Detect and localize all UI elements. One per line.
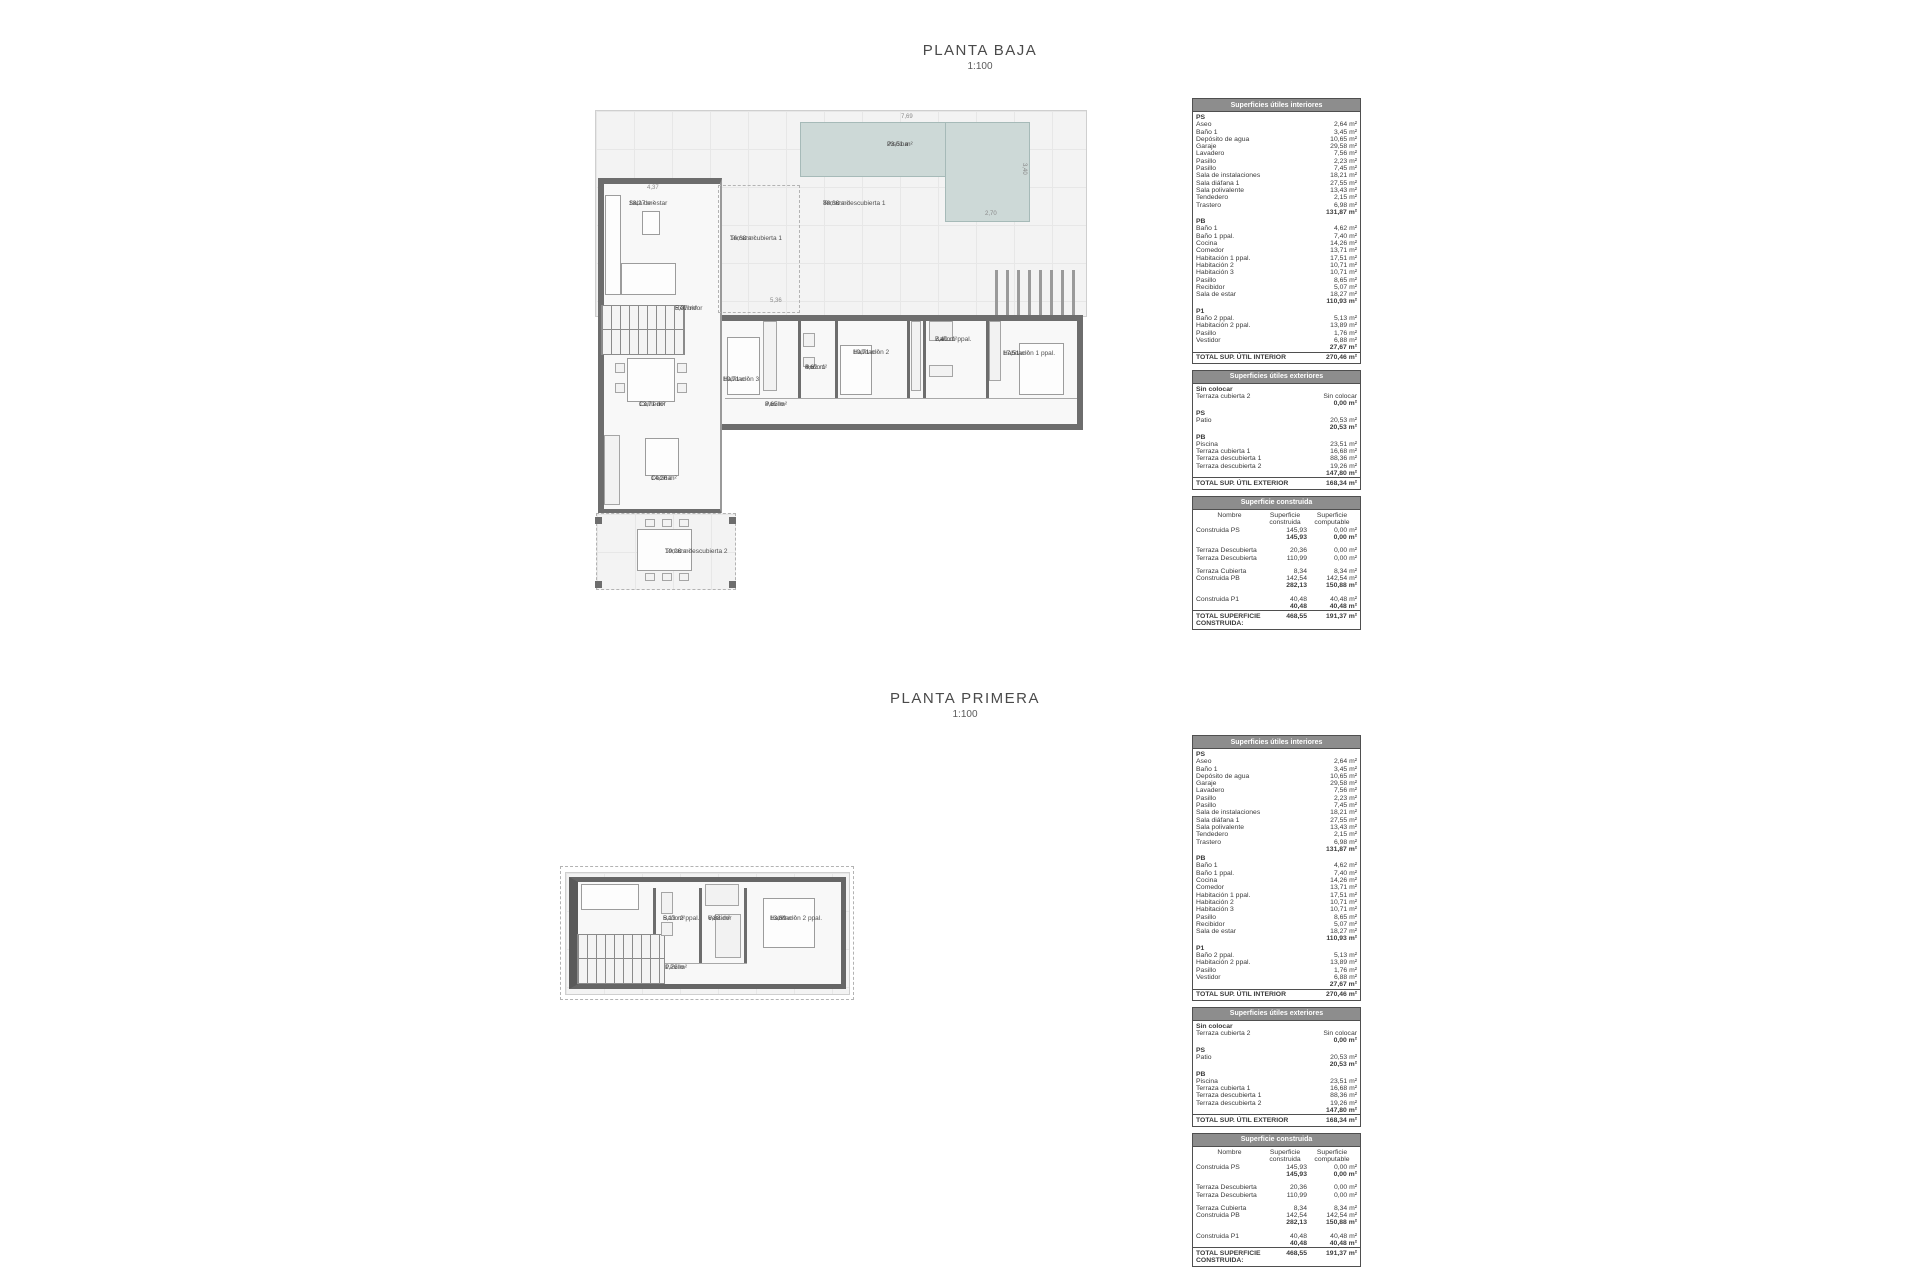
group-heading-label: PB	[1196, 855, 1205, 862]
row-label: Comedor	[1196, 884, 1224, 891]
subtotal-value: 147,80 m²	[1326, 470, 1357, 477]
table-row: Terraza Descubierta110,990,00 m²	[1193, 555, 1360, 562]
group-heading-label: PS	[1196, 1047, 1205, 1054]
total-label: TOTAL SUP. ÚTIL INTERIOR	[1196, 991, 1286, 998]
row-label: Piscina	[1196, 1078, 1218, 1085]
post	[595, 517, 602, 524]
table-row: 145,930,00 m²	[1193, 534, 1360, 541]
row-comp-value: 40,48 m²	[1307, 1240, 1357, 1247]
sink	[661, 892, 673, 914]
bed-room3	[727, 337, 760, 395]
table-row: 40,4840,48 m²	[1193, 1240, 1360, 1247]
row-label: Pasillo	[1196, 914, 1216, 921]
row-label: Terraza Cubierta	[1196, 1205, 1263, 1212]
table-row: Habitación 310,71 m²	[1193, 906, 1360, 913]
row-label: Trastero	[1196, 202, 1221, 209]
table-group-heading: PB	[1193, 432, 1360, 441]
table-row: Terraza Cubierta8,348,34 m²	[1193, 1205, 1360, 1212]
total-label: TOTAL SUP. ÚTIL EXTERIOR	[1196, 480, 1288, 487]
staircase-upper	[577, 934, 665, 984]
surface-table: Superficies útiles exterioresSin colocar…	[1192, 1007, 1361, 1127]
table-group-heading: Sin colocar	[1193, 384, 1360, 393]
group-heading-label: PB	[1196, 218, 1205, 225]
row-label: Habitación 2 ppal.	[1196, 959, 1250, 966]
row-value: 19,26 m²	[1330, 463, 1357, 470]
chair	[677, 363, 687, 373]
table-row: Piscina23,51 m²	[1193, 1078, 1360, 1085]
table-row: Pasillo7,45 m²	[1193, 802, 1360, 809]
row-value: 10,65 m²	[1330, 773, 1357, 780]
sofa-back	[605, 195, 621, 295]
row-value: 10,65 m²	[1330, 136, 1357, 143]
table-row: Habitación 1 ppal.17,51 m²	[1193, 892, 1360, 899]
room-label-area: 18,27 m²	[629, 200, 655, 208]
row-built-value: 40,48	[1263, 603, 1307, 610]
corridor-line	[725, 398, 1077, 399]
total-value: 270,46 m²	[1326, 354, 1357, 361]
room-label-area: 5,07 m²	[675, 305, 697, 313]
row-built-value: 282,13	[1263, 1219, 1307, 1226]
table-subtotal-row: 0,00 m²	[1193, 400, 1360, 407]
group-heading-label: PB	[1196, 1071, 1205, 1078]
table-row: Habitación 210,71 m²	[1193, 899, 1360, 906]
row-built-value: 145,93	[1263, 527, 1307, 534]
table-row: Cocina14,26 m²	[1193, 240, 1360, 247]
table-group-heading: PS	[1193, 408, 1360, 417]
chair	[679, 519, 689, 527]
row-value: 18,21 m²	[1330, 809, 1357, 816]
row-label: Comedor	[1196, 247, 1224, 254]
planta-baja-title: PLANTA BAJA 1:100	[880, 42, 1080, 72]
table-row: Terraza cubierta 2Sin colocar	[1193, 393, 1360, 400]
row-value: 1,76 m²	[1334, 330, 1357, 337]
row-value: 7,45 m²	[1334, 165, 1357, 172]
subtotal-value: 110,93 m²	[1326, 298, 1357, 305]
row-value: Sin colocar	[1323, 1030, 1357, 1037]
row-value: 5,13 m²	[1334, 315, 1357, 322]
table-subtotal-row: 131,87 m²	[1193, 209, 1360, 216]
room-label-area: 4,62 m²	[805, 364, 827, 372]
table-row: Baño 2 ppal.5,13 m²	[1193, 952, 1360, 959]
table-subtotal-row: 147,80 m²	[1193, 470, 1360, 477]
row-label	[1196, 603, 1263, 610]
drawing-sheet: PLANTA BAJA 1:100	[0, 0, 1920, 1280]
row-comp-value: 40,48 m²	[1307, 1233, 1357, 1240]
row-label: Lavadero	[1196, 787, 1224, 794]
row-value: 14,26 m²	[1330, 240, 1357, 247]
row-label: Recibidor	[1196, 921, 1225, 928]
surface-table: Superficies útiles interioresPSAseo2,64 …	[1192, 735, 1361, 1001]
row-value: 1,76 m²	[1334, 967, 1357, 974]
row-value: 2,64 m²	[1334, 121, 1357, 128]
row-label: Cocina	[1196, 240, 1217, 247]
row-label	[1196, 1219, 1263, 1226]
row-comp-value: 150,88 m²	[1307, 582, 1357, 589]
row-label: Tendedero	[1196, 831, 1228, 838]
table-row: Pasillo2,23 m²	[1193, 158, 1360, 165]
table-row: Terraza Descubierta20,360,00 m²	[1193, 1184, 1360, 1191]
row-label: Terraza Cubierta	[1196, 568, 1263, 575]
planta-baja-title-text: PLANTA BAJA	[880, 42, 1080, 59]
row-value: 18,27 m²	[1330, 928, 1357, 935]
staircase-divider	[577, 958, 665, 959]
table-group-heading: PS	[1193, 112, 1360, 121]
surface-table: Superficies útiles interioresPSAseo2,64 …	[1192, 98, 1361, 364]
row-value: 3,45 m²	[1334, 129, 1357, 136]
row-label: Sala diáfana 1	[1196, 180, 1239, 187]
row-label: Garaje	[1196, 143, 1216, 150]
total-value: 270,46 m²	[1326, 991, 1357, 998]
row-label: Terraza Descubierta	[1196, 1192, 1263, 1199]
table-row: Terraza descubierta 219,26 m²	[1193, 1100, 1360, 1107]
room-label-area: 16,68 m²	[730, 235, 756, 243]
wardrobe	[911, 321, 921, 391]
chair	[679, 573, 689, 581]
row-value: 16,68 m²	[1330, 1085, 1357, 1092]
row-value: 10,71 m²	[1330, 906, 1357, 913]
group-heading-label: PS	[1196, 751, 1205, 758]
row-value: 18,27 m²	[1330, 291, 1357, 298]
row-label: Terraza descubierta 1	[1196, 1092, 1261, 1099]
partition-wall	[835, 321, 838, 398]
dimension-label: 2,70	[985, 211, 997, 217]
kitchen-counter	[604, 435, 620, 505]
row-value: 13,43 m²	[1330, 187, 1357, 194]
row-label: Aseo	[1196, 758, 1212, 765]
row-built-value: 40,48	[1263, 596, 1307, 603]
table-row: Pasillo8,65 m²	[1193, 277, 1360, 284]
table-row: Trastero6,98 m²	[1193, 202, 1360, 209]
row-value: 18,21 m²	[1330, 172, 1357, 179]
table-row: Lavadero7,56 m²	[1193, 150, 1360, 157]
group-heading-label: PB	[1196, 434, 1205, 441]
row-label	[1196, 1240, 1263, 1247]
row-value: 7,45 m²	[1334, 802, 1357, 809]
table-row: Vestidor6,88 m²	[1193, 974, 1360, 981]
row-label: Terraza descubierta 2	[1196, 463, 1261, 470]
row-label: Baño 2 ppal.	[1196, 952, 1234, 959]
row-built-value: 8,34	[1263, 1205, 1307, 1212]
table-group-heading: PS	[1193, 749, 1360, 758]
row-comp-value: 0,00 m²	[1307, 1171, 1357, 1178]
row-value: 10,71 m²	[1330, 899, 1357, 906]
subtotal-value: 20,53 m²	[1330, 1061, 1357, 1068]
table-header: Superficies útiles interiores	[1193, 736, 1360, 749]
subtotal-value: 131,87 m²	[1326, 846, 1357, 853]
planta-baja-plan: Piscina23,51 m²Terraza descubierta 188,3…	[595, 105, 1090, 590]
table-row: Recibidor5,07 m²	[1193, 921, 1360, 928]
row-built-value: 142,54	[1263, 575, 1307, 582]
table-row: Pasillo8,65 m²	[1193, 914, 1360, 921]
table-subtotal-row: 27,67 m²	[1193, 981, 1360, 988]
table-row: Terraza descubierta 219,26 m²	[1193, 463, 1360, 470]
row-value: 2,15 m²	[1334, 831, 1357, 838]
table-row: Baño 1 ppal.7,40 m²	[1193, 233, 1360, 240]
table-group-heading: PB	[1193, 1069, 1360, 1078]
chair	[662, 573, 672, 581]
row-value: 7,56 m²	[1334, 787, 1357, 794]
table-row: Piscina23,51 m²	[1193, 441, 1360, 448]
row-label: Sala de estar	[1196, 291, 1236, 298]
subtotal-value: 20,53 m²	[1330, 424, 1357, 431]
table-subtotal-row: 131,87 m²	[1193, 846, 1360, 853]
table-row: Baño 2 ppal.5,13 m²	[1193, 315, 1360, 322]
room-label-area: 14,26 m²	[651, 475, 677, 483]
row-value: 20,53 m²	[1330, 1054, 1357, 1061]
table-total-row: TOTAL SUP. ÚTIL INTERIOR270,46 m²	[1193, 352, 1360, 363]
planta-primera-title-text: PLANTA PRIMERA	[865, 690, 1065, 707]
table-row: Construida PS145,930,00 m²	[1193, 527, 1360, 534]
total-built-value: 468,55	[1263, 1250, 1307, 1265]
row-value: 13,89 m²	[1330, 322, 1357, 329]
row-label	[1196, 582, 1263, 589]
table-row: Baño 14,62 m²	[1193, 862, 1360, 869]
table-row: Terraza cubierta 116,68 m²	[1193, 448, 1360, 455]
row-value: 13,71 m²	[1330, 247, 1357, 254]
table-row: Habitación 2 ppal.13,89 m²	[1193, 959, 1360, 966]
row-value: 6,98 m²	[1334, 202, 1357, 209]
planta-primera-scale: 1:100	[865, 709, 1065, 720]
subtotal-value: 27,67 m²	[1330, 344, 1357, 351]
row-value: 13,71 m²	[1330, 884, 1357, 891]
staircase	[601, 305, 685, 355]
row-label: Patio	[1196, 1054, 1212, 1061]
row-label: Sala de estar	[1196, 928, 1236, 935]
sofa-chaise	[621, 263, 676, 295]
row-value: 23,51 m²	[1330, 1078, 1357, 1085]
row-label: Sala polivalente	[1196, 824, 1244, 831]
row-label: Depósito de agua	[1196, 136, 1249, 143]
partition-wall	[798, 321, 801, 398]
partition-wall	[907, 321, 910, 398]
dining-table	[627, 358, 675, 402]
row-value: 19,26 m²	[1330, 1100, 1357, 1107]
table-row: Patio20,53 m²	[1193, 1054, 1360, 1061]
row-label: Pasillo	[1196, 158, 1216, 165]
table-group-heading: P1	[1193, 943, 1360, 952]
row-value: 27,55 m²	[1330, 180, 1357, 187]
row-label: Construida PB	[1196, 1212, 1263, 1219]
chair	[662, 519, 672, 527]
table-row: Aseo2,64 m²	[1193, 121, 1360, 128]
row-label: Depósito de agua	[1196, 773, 1249, 780]
row-label: Pasillo	[1196, 795, 1216, 802]
pool-vertical	[945, 122, 1030, 222]
chair	[645, 519, 655, 527]
row-label: Cocina	[1196, 877, 1217, 884]
table-row: Construida P140,4840,48 m²	[1193, 596, 1360, 603]
row-label: Baño 1	[1196, 862, 1218, 869]
table-row: Construida PS145,930,00 m²	[1193, 1164, 1360, 1171]
row-value: 16,68 m²	[1330, 448, 1357, 455]
row-label: Terraza descubierta 2	[1196, 1100, 1261, 1107]
partition-wall	[744, 888, 747, 963]
row-label: Terraza cubierta 1	[1196, 1085, 1250, 1092]
table-subtotal-row: 147,80 m²	[1193, 1107, 1360, 1114]
table-row: Sala de estar18,27 m²	[1193, 291, 1360, 298]
table-row: Cocina14,26 m²	[1193, 877, 1360, 884]
table-header: Superficie construida	[1193, 497, 1360, 510]
row-built-value: 110,99	[1263, 1192, 1307, 1199]
row-label	[1196, 534, 1263, 541]
table-row: Sala de instalaciones18,21 m²	[1193, 809, 1360, 816]
dimension-label: 5,36	[770, 298, 782, 304]
total-value: 168,34 m²	[1326, 480, 1357, 487]
row-value: 7,40 m²	[1334, 870, 1357, 877]
surface-table: Superficies útiles exterioresSin colocar…	[1192, 370, 1361, 490]
table-total-row: TOTAL SUP. ÚTIL INTERIOR270,46 m²	[1193, 989, 1360, 1000]
row-value: 10,71 m²	[1330, 262, 1357, 269]
row-value: 23,51 m²	[1330, 441, 1357, 448]
col-header-comp: Superficiecomputable	[1307, 512, 1357, 527]
row-label: Construida P1	[1196, 1233, 1263, 1240]
dimension-label: 4,37	[647, 185, 659, 191]
row-label: Construida P1	[1196, 596, 1263, 603]
room-label-area: 8,65 m²	[765, 401, 787, 409]
row-comp-value: 142,54 m²	[1307, 1212, 1357, 1219]
table-row: Terraza Cubierta8,348,34 m²	[1193, 568, 1360, 575]
row-built-value: 142,54	[1263, 1212, 1307, 1219]
table-row: Construida PB142,54142,54 m²	[1193, 575, 1360, 582]
room-label-area: 88,36 m²	[823, 200, 849, 208]
table-header: Superficies útiles interiores	[1193, 99, 1360, 112]
total-built-value: 468,55	[1263, 613, 1307, 628]
row-built-value: 282,13	[1263, 582, 1307, 589]
covered-terrace-outline	[718, 185, 800, 313]
table-group-heading: Sin colocar	[1193, 1021, 1360, 1030]
row-built-value: 8,34	[1263, 568, 1307, 575]
row-built-value: 40,48	[1263, 1233, 1307, 1240]
table-subtotal-row: 27,67 m²	[1193, 344, 1360, 351]
dimension-label: 7,69	[901, 114, 913, 120]
row-label: Habitación 3	[1196, 906, 1234, 913]
post	[729, 581, 736, 588]
table-total-row: TOTAL SUPERFICIE CONSTRUIDA:468,55191,37…	[1193, 610, 1360, 629]
table-row: Sala de instalaciones18,21 m²	[1193, 172, 1360, 179]
room-label-area: 1,76 m²	[665, 964, 687, 972]
row-value: 7,40 m²	[1334, 233, 1357, 240]
row-label: Sala diáfana 1	[1196, 817, 1239, 824]
total-label: TOTAL SUP. ÚTIL EXTERIOR	[1196, 1117, 1288, 1124]
row-value: 8,65 m²	[1334, 914, 1357, 921]
table-row: Comedor13,71 m²	[1193, 247, 1360, 254]
table-row: Aseo2,64 m²	[1193, 758, 1360, 765]
total-comp-value: 191,37 m²	[1307, 613, 1357, 628]
table-row: Sala diáfana 127,55 m²	[1193, 817, 1360, 824]
wardrobe	[989, 321, 1001, 381]
subtotal-value: 27,67 m²	[1330, 981, 1357, 988]
table-subtotal-row: 110,93 m²	[1193, 298, 1360, 305]
row-value: 27,55 m²	[1330, 817, 1357, 824]
table-row: 145,930,00 m²	[1193, 1171, 1360, 1178]
col-header-built: Superficieconstruida	[1263, 512, 1307, 527]
row-built-value: 145,93	[1263, 1171, 1307, 1178]
side-table	[642, 211, 660, 235]
row-comp-value: 0,00 m²	[1307, 527, 1357, 534]
row-comp-value: 8,34 m²	[1307, 1205, 1357, 1212]
row-label: Construida PS	[1196, 1164, 1263, 1171]
row-value: 5,07 m²	[1334, 921, 1357, 928]
row-value: 10,71 m²	[1330, 269, 1357, 276]
table-row: Terraza Descubierta20,360,00 m²	[1193, 547, 1360, 554]
row-label: Terraza cubierta 1	[1196, 448, 1250, 455]
row-value: 17,51 m²	[1330, 892, 1357, 899]
row-comp-value: 0,00 m²	[1307, 534, 1357, 541]
row-label: Terraza cubierta 2	[1196, 1030, 1250, 1037]
built-surface-table: Superficie construidaNombreSuperficiecon…	[1192, 496, 1361, 630]
table-row: Garaje29,58 m²	[1193, 143, 1360, 150]
row-label: Baño 1 ppal.	[1196, 233, 1234, 240]
row-label: Baño 1 ppal.	[1196, 870, 1234, 877]
row-value: 6,88 m²	[1334, 337, 1357, 344]
chair	[615, 363, 625, 373]
row-comp-value: 150,88 m²	[1307, 1219, 1357, 1226]
table-row: Terraza cubierta 2Sin colocar	[1193, 1030, 1360, 1037]
chair	[645, 573, 655, 581]
table-row: Tendedero2,15 m²	[1193, 831, 1360, 838]
table-row: Habitación 2 ppal.13,89 m²	[1193, 322, 1360, 329]
table-row: Vestidor6,88 m²	[1193, 337, 1360, 344]
row-label: Piscina	[1196, 441, 1218, 448]
shower	[705, 884, 739, 906]
col-header-name: Nombre	[1196, 1149, 1263, 1164]
row-label: Patio	[1196, 417, 1212, 424]
table-row: Trastero6,98 m²	[1193, 839, 1360, 846]
row-built-value: 40,48	[1263, 1240, 1307, 1247]
row-label: Habitación 2 ppal.	[1196, 322, 1250, 329]
row-value: 7,56 m²	[1334, 150, 1357, 157]
subtotal-value: 131,87 m²	[1326, 209, 1357, 216]
kitchen-island	[645, 438, 679, 476]
table-row: 40,4840,48 m²	[1193, 603, 1360, 610]
table-row: Recibidor5,07 m²	[1193, 284, 1360, 291]
table-header: Superficies útiles exteriores	[1193, 1008, 1360, 1021]
row-label: Baño 1	[1196, 225, 1218, 232]
table-row: Baño 14,62 m²	[1193, 225, 1360, 232]
surface-tables-planta-primera: Superficies útiles interioresPSAseo2,64 …	[1192, 735, 1359, 1273]
row-value: 17,51 m²	[1330, 255, 1357, 262]
table-row: Pasillo1,76 m²	[1193, 330, 1360, 337]
table-row: Depósito de agua10,65 m²	[1193, 773, 1360, 780]
table-row: Habitación 310,71 m²	[1193, 269, 1360, 276]
table-row: Sala diáfana 127,55 m²	[1193, 180, 1360, 187]
table-row: Patio20,53 m²	[1193, 417, 1360, 424]
col-header-comp: Superficiecomputable	[1307, 1149, 1357, 1164]
col-header-built: Superficieconstruida	[1263, 1149, 1307, 1164]
table-subtotal-row: 20,53 m²	[1193, 424, 1360, 431]
group-heading-label: PS	[1196, 410, 1205, 417]
row-label: Pasillo	[1196, 802, 1216, 809]
row-value: 88,36 m²	[1330, 455, 1357, 462]
chair	[615, 383, 625, 393]
row-value: 2,23 m²	[1334, 158, 1357, 165]
row-label: Pasillo	[1196, 967, 1216, 974]
total-comp-value: 191,37 m²	[1307, 1250, 1357, 1265]
table-row: Construida P140,4840,48 m²	[1193, 1233, 1360, 1240]
table-header: Superficies útiles exteriores	[1193, 371, 1360, 384]
table-row: Comedor13,71 m²	[1193, 884, 1360, 891]
table-row: Terraza cubierta 116,68 m²	[1193, 1085, 1360, 1092]
row-value: 8,65 m²	[1334, 277, 1357, 284]
room-label-area: 10,71 m²	[723, 376, 749, 384]
toilet	[661, 922, 673, 936]
row-value: 20,53 m²	[1330, 417, 1357, 424]
row-label: Vestidor	[1196, 974, 1221, 981]
row-label	[1196, 1171, 1263, 1178]
row-value: Sin colocar	[1323, 393, 1357, 400]
table-total-row: TOTAL SUP. ÚTIL EXTERIOR168,34 m²	[1193, 1114, 1360, 1125]
row-label: Sala de instalaciones	[1196, 809, 1260, 816]
